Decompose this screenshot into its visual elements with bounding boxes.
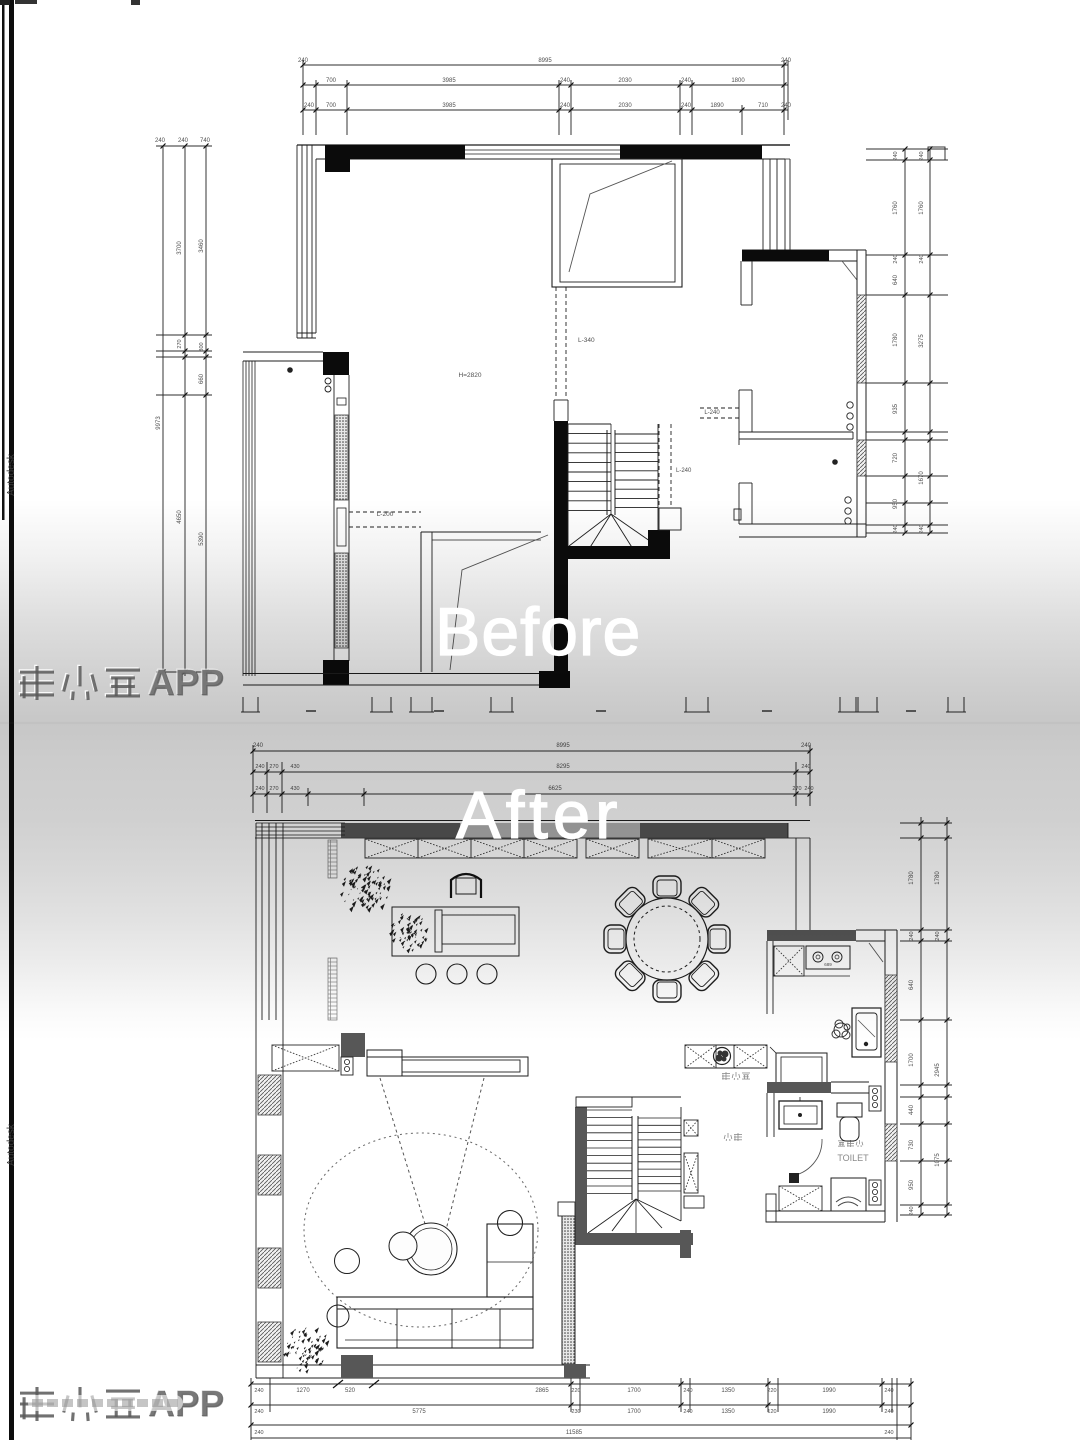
svg-text:APP: APP	[149, 663, 225, 704]
